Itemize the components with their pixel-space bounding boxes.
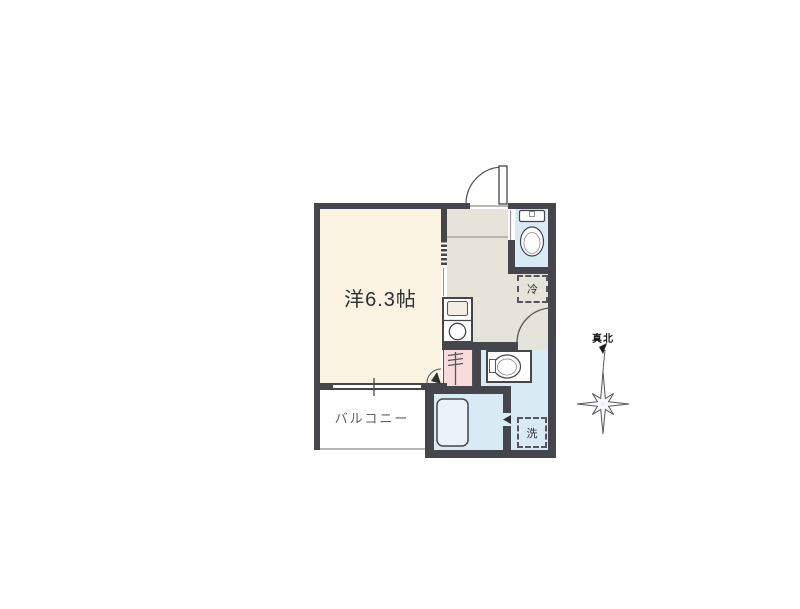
water-heater-symbol xyxy=(448,352,463,385)
true-north-label: 真北 xyxy=(588,330,618,345)
bath-door-marker xyxy=(503,413,511,426)
refrigerator-label: 冷 xyxy=(527,281,538,297)
main-room-label: 洋6.3帖 xyxy=(320,283,441,312)
mainroom-corner-door-arc xyxy=(427,369,441,384)
washroom-door-arc xyxy=(517,308,552,343)
washing-machine-space: 洗 xyxy=(517,417,547,448)
balcony-label: バルコニー xyxy=(319,408,425,427)
washer-label: 洗 xyxy=(527,425,538,441)
kitchen-sink-and-burner-icon xyxy=(443,302,472,340)
floor-plan-canvas: 冷 洗 xyxy=(0,0,800,609)
bathtub-icon xyxy=(437,399,468,446)
toilet-icon xyxy=(520,211,545,257)
refrigerator-space: 冷 xyxy=(517,275,548,303)
washbasin-icon xyxy=(490,355,521,378)
compass-rose-icon xyxy=(577,343,629,434)
entrance-door-icon xyxy=(447,166,508,237)
